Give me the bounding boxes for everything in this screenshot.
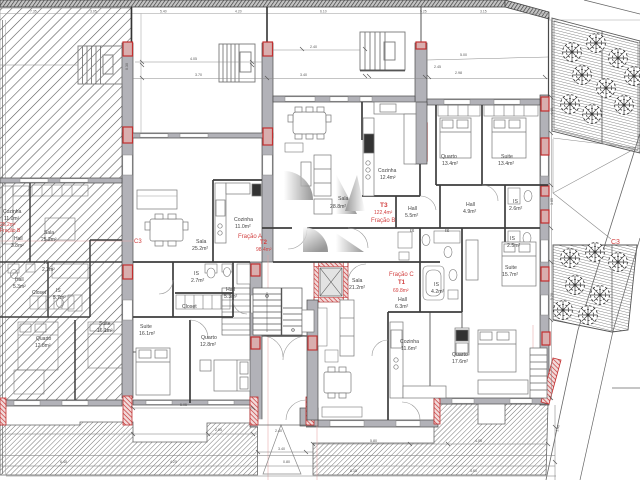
- svg-text:2.05: 2.05: [215, 428, 222, 432]
- svg-text:11.0m²: 11.0m²: [235, 224, 251, 230]
- svg-text:2.6m²: 2.6m²: [509, 206, 523, 212]
- svg-text:3.8m²: 3.8m²: [11, 243, 24, 249]
- svg-text:3.85: 3.85: [550, 198, 554, 205]
- svg-text:8.15: 8.15: [350, 469, 357, 473]
- svg-text:16.1m²: 16.1m²: [139, 331, 155, 337]
- svg-text:3.60: 3.60: [470, 469, 477, 473]
- svg-text:IS: IS: [513, 199, 518, 205]
- svg-text:Fração A: Fração A: [238, 234, 262, 240]
- svg-text:3.40: 3.40: [278, 447, 285, 451]
- svg-text:5.40: 5.40: [160, 10, 167, 14]
- svg-text:5.95: 5.95: [180, 403, 187, 407]
- svg-text:Hall: Hall: [226, 287, 235, 293]
- svg-text:16.1m²: 16.1m²: [97, 328, 113, 334]
- svg-text:Fração B: Fração B: [371, 218, 395, 224]
- svg-text:6.3m²: 6.3m²: [395, 304, 409, 310]
- svg-text:3.15: 3.15: [480, 10, 487, 14]
- svg-text:3.05: 3.05: [90, 10, 97, 14]
- svg-text:5.3m²: 5.3m²: [13, 284, 26, 290]
- svg-text:2.7m²: 2.7m²: [42, 267, 55, 273]
- svg-text:4.05: 4.05: [475, 439, 482, 443]
- svg-text:IS: IS: [44, 260, 49, 266]
- svg-text:Fração C: Fração C: [389, 272, 414, 278]
- svg-text:13.4m²: 13.4m²: [498, 161, 514, 167]
- svg-text:3.70: 3.70: [195, 73, 202, 77]
- svg-text:IS: IS: [410, 228, 414, 233]
- svg-text:Closet: Closet: [32, 290, 47, 296]
- svg-text:IS: IS: [194, 271, 199, 277]
- svg-text:5.7m²: 5.7m²: [53, 295, 66, 301]
- svg-text:0.80: 0.80: [283, 460, 290, 464]
- svg-text:4.9m²: 4.9m²: [463, 209, 477, 215]
- svg-text:2.40: 2.40: [275, 429, 282, 433]
- svg-text:6.40: 6.40: [60, 460, 67, 464]
- svg-text:Hall: Hall: [14, 236, 23, 242]
- svg-text:2.40: 2.40: [310, 45, 317, 49]
- svg-text:Cozinha: Cozinha: [234, 217, 253, 223]
- svg-text:Suite: Suite: [501, 154, 513, 160]
- svg-text:Quarto: Quarto: [452, 352, 468, 358]
- svg-text:3.40: 3.40: [300, 73, 307, 77]
- svg-text:12.8m²: 12.8m²: [35, 343, 51, 349]
- svg-text:IS: IS: [434, 282, 439, 288]
- svg-text:0.30: 0.30: [125, 63, 129, 70]
- svg-text:12.4m²: 12.4m²: [380, 175, 396, 181]
- svg-text:4.05: 4.05: [190, 57, 197, 61]
- svg-text:IS: IS: [510, 236, 515, 242]
- svg-text:Sala: Sala: [196, 239, 206, 245]
- svg-text:2.5m²: 2.5m²: [507, 243, 521, 249]
- svg-text:5.20: 5.20: [550, 293, 554, 300]
- svg-text:IS: IS: [445, 228, 449, 233]
- svg-text:2.45: 2.45: [434, 65, 441, 69]
- svg-text:C3: C3: [134, 239, 142, 245]
- svg-text:Cozinha: Cozinha: [378, 168, 397, 174]
- svg-text:Quarto: Quarto: [201, 335, 217, 341]
- svg-text:4.40: 4.40: [550, 108, 554, 115]
- svg-text:Cozinha: Cozinha: [400, 339, 419, 345]
- svg-text:Quarto: Quarto: [36, 336, 52, 342]
- svg-text:4.2m²: 4.2m²: [431, 289, 445, 295]
- svg-text:2.98: 2.98: [455, 71, 462, 75]
- svg-text:Quarto: Quarto: [441, 154, 457, 160]
- svg-text:Fração B: Fração B: [0, 228, 21, 234]
- svg-text:28.8m²: 28.8m²: [330, 204, 346, 210]
- svg-text:Hall: Hall: [466, 202, 475, 208]
- svg-text:Hall: Hall: [398, 297, 407, 303]
- svg-text:Cozinha: Cozinha: [3, 209, 22, 215]
- svg-text:Suite: Suite: [99, 321, 111, 327]
- svg-text:2.7m²: 2.7m²: [191, 278, 205, 284]
- svg-text:13.4m²: 13.4m²: [442, 161, 458, 167]
- svg-text:Hall: Hall: [15, 277, 24, 283]
- svg-text:4.20: 4.20: [235, 10, 242, 14]
- svg-text:12.8m²: 12.8m²: [200, 342, 216, 348]
- svg-text:Sala: Sala: [352, 278, 362, 284]
- svg-text:Hall: Hall: [408, 206, 417, 212]
- svg-text:IS: IS: [56, 288, 61, 294]
- svg-text:122,4m²: 122,4m²: [374, 210, 393, 216]
- svg-text:5.25: 5.25: [420, 10, 427, 14]
- svg-text:69.8m²: 69.8m²: [393, 288, 409, 294]
- svg-text:5.5m²: 5.5m²: [405, 213, 419, 219]
- svg-text:T2: T2: [260, 240, 268, 246]
- svg-text:Suite: Suite: [140, 324, 152, 330]
- svg-text:7.35: 7.35: [30, 10, 37, 14]
- svg-text:Sala: Sala: [338, 196, 348, 202]
- svg-text:Closet: Closet: [182, 304, 197, 310]
- svg-text:15.7m²: 15.7m²: [502, 272, 518, 278]
- svg-text:Sala: Sala: [44, 230, 54, 236]
- svg-text:25,2m²: 25,2m²: [0, 222, 16, 228]
- svg-text:Suite: Suite: [505, 265, 517, 271]
- svg-text:5.80: 5.80: [370, 439, 377, 443]
- svg-text:T1: T1: [398, 280, 406, 286]
- svg-text:11.6m²: 11.6m²: [401, 346, 417, 352]
- svg-text:98,4m²: 98,4m²: [256, 247, 272, 253]
- svg-text:25.2m²: 25.2m²: [192, 246, 208, 252]
- svg-text:4.25: 4.25: [170, 460, 177, 464]
- svg-text:5.3m²: 5.3m²: [224, 294, 238, 300]
- svg-text:21.2m²: 21.2m²: [349, 285, 365, 291]
- svg-text:6.10: 6.10: [320, 10, 327, 14]
- svg-text:T3: T3: [380, 202, 388, 209]
- svg-text:5.00: 5.00: [460, 53, 467, 57]
- svg-text:C3: C3: [611, 239, 620, 246]
- svg-text:25.2m²: 25.2m²: [41, 237, 57, 243]
- svg-text:17.6m²: 17.6m²: [452, 359, 468, 365]
